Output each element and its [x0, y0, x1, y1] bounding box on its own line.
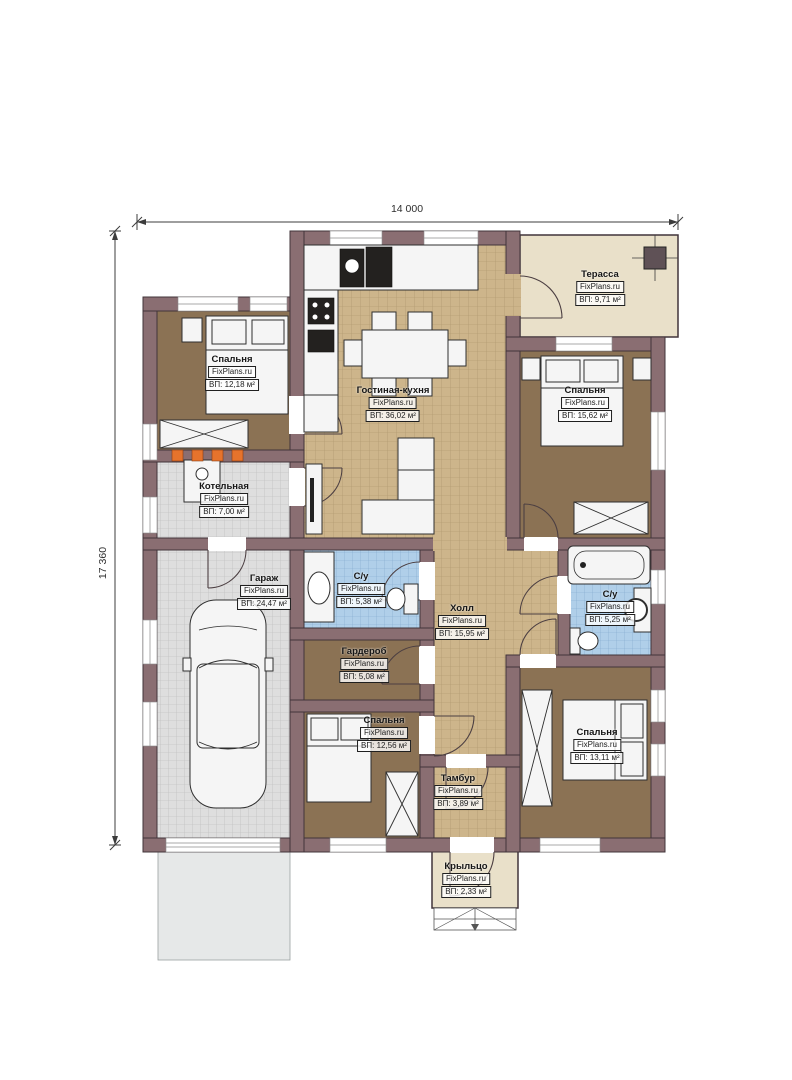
floor-wardrobe — [304, 640, 420, 700]
wardrobe — [160, 420, 248, 448]
wardrobe — [522, 690, 552, 806]
pillow — [546, 360, 580, 382]
pillow — [311, 718, 338, 740]
floor-tambour — [434, 767, 506, 838]
porch-steps — [434, 908, 516, 931]
bathtub — [568, 546, 650, 584]
wardrobe — [574, 502, 648, 534]
driveway — [158, 850, 290, 960]
pillow — [621, 704, 643, 738]
car — [183, 600, 273, 808]
dimension-width-label: 14 000 — [391, 203, 423, 215]
garage-door — [166, 838, 280, 852]
furniture-garage — [183, 600, 273, 808]
pillow — [212, 320, 246, 344]
pillow — [252, 320, 284, 344]
pillow — [584, 360, 618, 382]
nightstand — [633, 358, 651, 380]
washbasin — [304, 552, 334, 622]
floor-boiler-room — [157, 462, 290, 538]
porch-deck — [432, 850, 518, 908]
wardrobe — [386, 772, 418, 836]
fridge — [366, 247, 392, 287]
dimension-height-label: 17 360 — [97, 547, 109, 579]
nightstand — [182, 318, 202, 342]
floor-plan-drawing — [0, 0, 792, 1080]
tv-stand — [306, 464, 322, 534]
floor-plan-canvas: 14 000 17 360 Спальня FixPlans.ru ВП: 12… — [0, 0, 792, 1080]
furniture-boiler-room — [184, 460, 220, 502]
pillow — [341, 718, 368, 740]
nightstand — [522, 358, 540, 380]
boiler — [184, 460, 220, 502]
pillow — [621, 742, 643, 776]
